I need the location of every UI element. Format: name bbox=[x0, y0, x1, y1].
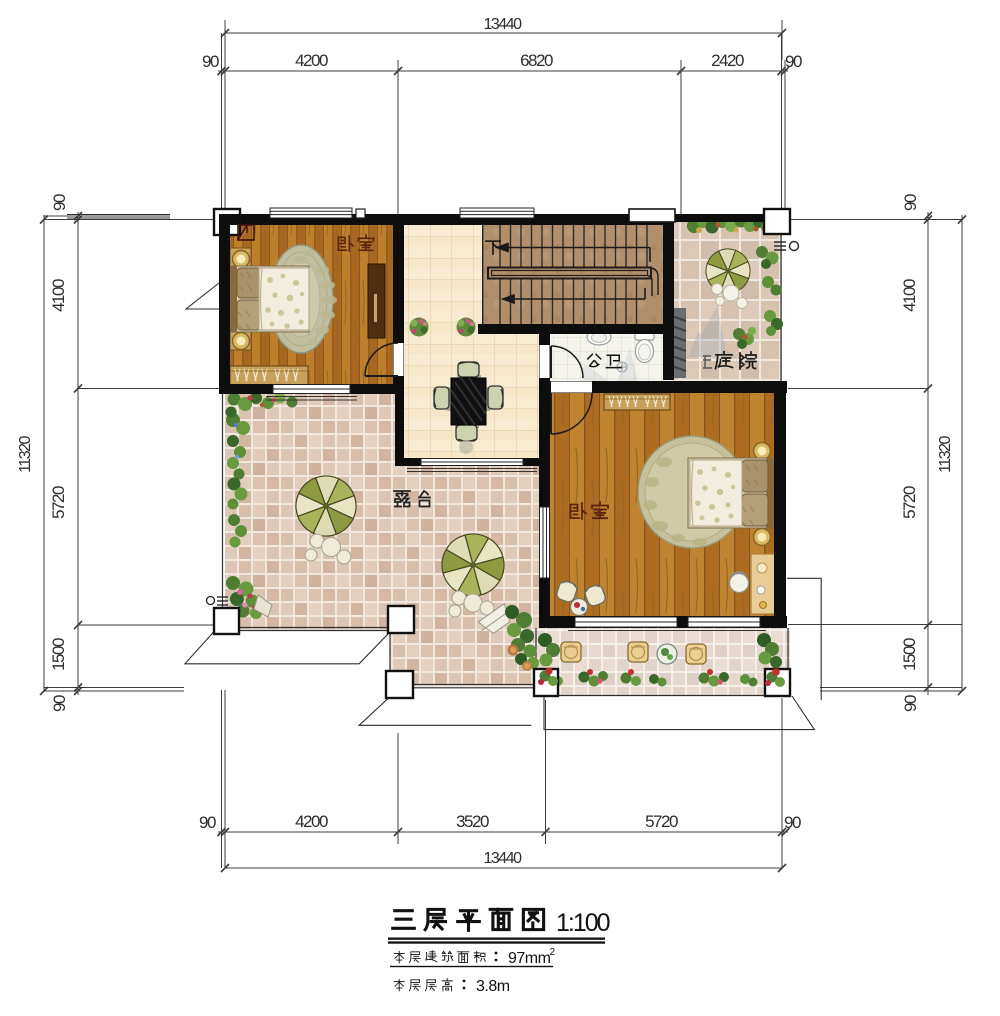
svg-text:3520: 3520 bbox=[456, 812, 489, 831]
svg-text:11320: 11320 bbox=[17, 436, 34, 473]
svg-text:2: 2 bbox=[550, 947, 556, 958]
svg-text:90: 90 bbox=[785, 52, 802, 71]
svg-text:4100: 4100 bbox=[900, 279, 919, 312]
svg-text:5720: 5720 bbox=[645, 812, 678, 831]
svg-text:5720: 5720 bbox=[900, 486, 919, 519]
svg-text:3.8m: 3.8m bbox=[476, 978, 510, 995]
svg-text:2420: 2420 bbox=[711, 51, 744, 70]
svg-text:6820: 6820 bbox=[520, 51, 553, 70]
svg-text:90: 90 bbox=[50, 194, 69, 211]
svg-text:90: 90 bbox=[901, 695, 920, 712]
svg-text:90: 90 bbox=[784, 813, 801, 832]
svg-text:4200: 4200 bbox=[295, 812, 328, 831]
svg-text:90: 90 bbox=[50, 695, 69, 712]
svg-text:4100: 4100 bbox=[49, 279, 68, 312]
svg-text:97mm: 97mm bbox=[508, 950, 551, 967]
svg-text:1500: 1500 bbox=[900, 638, 919, 671]
svg-text:90: 90 bbox=[901, 194, 920, 211]
svg-text:11320: 11320 bbox=[937, 436, 954, 473]
svg-text:4200: 4200 bbox=[295, 51, 328, 70]
svg-text:1:100: 1:100 bbox=[556, 909, 610, 937]
svg-text:13440: 13440 bbox=[484, 850, 523, 867]
svg-text:90: 90 bbox=[202, 52, 219, 71]
svg-text:13440: 13440 bbox=[484, 16, 523, 33]
svg-text:90: 90 bbox=[199, 813, 216, 832]
svg-text:5720: 5720 bbox=[49, 486, 68, 519]
svg-text:1500: 1500 bbox=[49, 638, 68, 671]
